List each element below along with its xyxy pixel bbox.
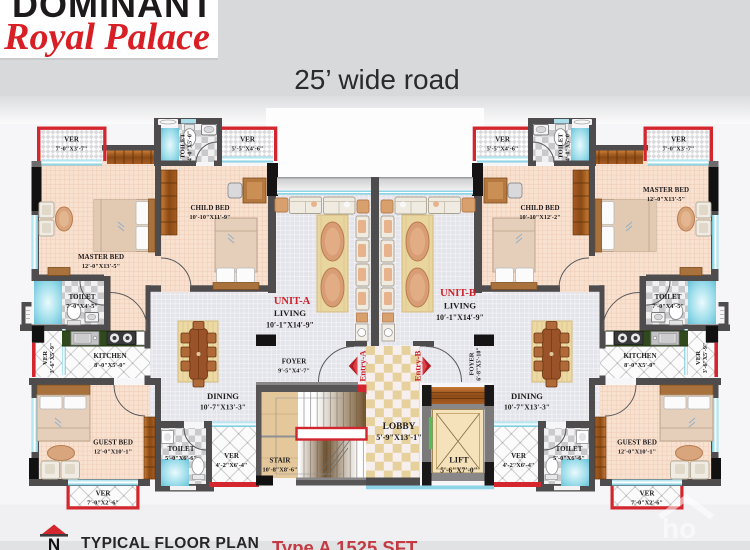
svg-text:Entry-A: Entry-A: [358, 350, 368, 382]
svg-text:7′-0"X4′-5": 7′-0"X4′-5": [652, 303, 684, 310]
svg-text:DINING: DINING: [511, 391, 543, 401]
svg-text:STAIR: STAIR: [270, 457, 292, 465]
svg-text:10′-1"X14′-9": 10′-1"X14′-9": [266, 321, 314, 330]
svg-text:VER: VER: [42, 351, 49, 365]
svg-text:7′-0"X2′-6": 7′-0"X2′-6": [631, 500, 663, 507]
svg-text:VER: VER: [671, 136, 687, 144]
svg-text:12′-0"X13′-5": 12′-0"X13′-5": [82, 263, 120, 270]
svg-text:N: N: [48, 535, 60, 550]
svg-text:10′-7"X13′-3": 10′-7"X13′-3": [200, 403, 246, 412]
svg-text:4′-2"X6′-4": 4′-2"X6′-4": [503, 462, 535, 469]
svg-text:5′-6"X7′-0": 5′-6"X7′-0": [440, 466, 477, 475]
svg-text:10′-10"X12′-2": 10′-10"X12′-2": [519, 214, 560, 221]
svg-text:10′-7"X13′-3": 10′-7"X13′-3": [504, 403, 550, 412]
svg-text:25’ wide road: 25’ wide road: [294, 64, 460, 95]
svg-text:7′-0"X3′-7": 7′-0"X3′-7": [663, 146, 695, 153]
svg-text:TOILET: TOILET: [556, 445, 583, 453]
svg-text:KITCHEN: KITCHEN: [623, 352, 656, 360]
svg-text:TOILET: TOILET: [69, 293, 96, 301]
svg-text:7′-0"X3′-7": 7′-0"X3′-7": [56, 146, 88, 153]
svg-text:TYPICAL FLOOR PLAN: TYPICAL FLOOR PLAN: [81, 535, 259, 550]
svg-text:LOBBY: LOBBY: [383, 422, 416, 432]
svg-text:MASTER BED: MASTER BED: [643, 186, 689, 194]
svg-text:5′-0"X6′-6": 5′-0"X6′-6": [553, 455, 585, 462]
svg-text:7′-0"X2′-6": 7′-0"X2′-6": [87, 500, 119, 507]
svg-text:10′-1"X14′-9": 10′-1"X14′-9": [436, 313, 484, 322]
svg-text:3′-6"X5′-9": 3′-6"X5′-9": [50, 343, 56, 373]
svg-text:LIVING: LIVING: [274, 308, 306, 318]
svg-text:CHILD BED: CHILD BED: [520, 204, 559, 212]
svg-text:6′-8"X5′-10": 6′-8"X5′-10": [477, 347, 483, 380]
svg-text:12′-0"X10′-1": 12′-0"X10′-1": [94, 449, 132, 456]
svg-text:VER: VER: [96, 490, 112, 498]
svg-text:8′-0"X5′-0": 8′-0"X5′-0": [624, 362, 656, 369]
svg-text:UNIT-B: UNIT-B: [440, 288, 476, 299]
svg-text:LIVING: LIVING: [444, 301, 476, 311]
svg-text:MASTER BED: MASTER BED: [78, 253, 124, 261]
svg-text:LIFT: LIFT: [449, 456, 469, 465]
svg-text:Type A 1525 SFT: Type A 1525 SFT: [272, 537, 418, 550]
svg-text:7′-0"X4′-5": 7′-0"X4′-5": [66, 303, 98, 310]
svg-text:VER: VER: [224, 452, 240, 460]
svg-text:UNIT-A: UNIT-A: [274, 296, 311, 307]
svg-text:5′-0"X6′-6": 5′-0"X6′-6": [165, 455, 197, 462]
svg-text:Entry-B: Entry-B: [413, 350, 423, 381]
svg-text:9′-5"X4′-7": 9′-5"X4′-7": [278, 368, 310, 375]
svg-text:Royal Palace: Royal Palace: [3, 16, 210, 58]
svg-text:8′-0"X5′-0": 8′-0"X5′-0": [94, 362, 126, 369]
svg-text:5′-5"X4′-6": 5′-5"X4′-6": [232, 146, 264, 153]
svg-text:10′-10"X11′-9": 10′-10"X11′-9": [190, 214, 231, 221]
svg-text:VER: VER: [64, 136, 80, 144]
svg-text:4′-0"X5′-0": 4′-0"X5′-0": [188, 131, 194, 161]
svg-text:GUEST BED: GUEST BED: [617, 439, 657, 447]
svg-text:5′-5"X4′-6": 5′-5"X4′-6": [487, 146, 519, 153]
svg-text:KITCHEN: KITCHEN: [93, 352, 126, 360]
svg-text:TOILET: TOILET: [558, 133, 565, 159]
svg-text:5′-9"X13′-1": 5′-9"X13′-1": [376, 433, 422, 442]
svg-text:12′-0"X13′-5": 12′-0"X13′-5": [647, 196, 685, 203]
svg-text:VER: VER: [511, 452, 527, 460]
svg-text:4′-2"X6′-4": 4′-2"X6′-4": [216, 462, 248, 469]
svg-text:TOILET: TOILET: [655, 293, 682, 301]
svg-text:CHILD BED: CHILD BED: [190, 204, 229, 212]
svg-text:VER: VER: [695, 351, 702, 365]
svg-text:DINING: DINING: [207, 391, 239, 401]
svg-text:TOILET: TOILET: [168, 445, 195, 453]
svg-text:VER: VER: [240, 136, 256, 144]
svg-text:VER: VER: [495, 136, 511, 144]
svg-text:FOYER: FOYER: [282, 358, 307, 366]
svg-text:4′-0"X5′-0": 4′-0"X5′-0": [566, 131, 572, 161]
svg-text:FOYER: FOYER: [469, 352, 476, 375]
svg-text:10′-8"X8′-6": 10′-8"X8′-6": [262, 467, 297, 474]
svg-text:VER: VER: [640, 490, 656, 498]
svg-text:TOILET: TOILET: [180, 133, 187, 159]
svg-text:12′-0"X10′-1": 12′-0"X10′-1": [618, 449, 656, 456]
svg-text:3′-6"X5′-9": 3′-6"X5′-9": [703, 343, 709, 373]
svg-text:ho: ho: [662, 513, 696, 544]
svg-text:GUEST BED: GUEST BED: [93, 439, 133, 447]
